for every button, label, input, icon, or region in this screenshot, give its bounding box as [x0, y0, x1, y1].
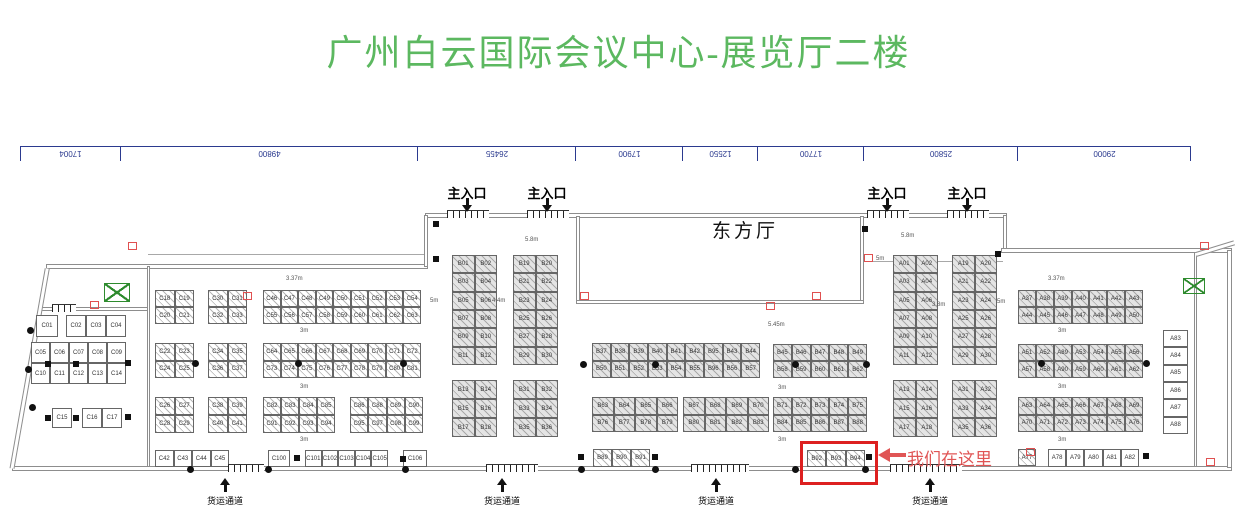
wall-line	[148, 254, 428, 255]
booth-C67: C67	[316, 343, 334, 361]
column-dot	[792, 361, 799, 368]
booth-A27: A27	[952, 328, 975, 346]
booth-B74: B74	[829, 397, 848, 415]
ruler-dimension-label: 17900	[576, 149, 683, 158]
booth-A02: A02	[916, 255, 939, 273]
booth-C16: C16	[82, 408, 102, 428]
booth-C86: C86	[350, 397, 368, 415]
booth-B02: B02	[475, 255, 498, 273]
booth-B24: B24	[536, 292, 559, 310]
booth-C102: C102	[322, 450, 339, 467]
column-dot	[25, 366, 32, 373]
arrow-head	[882, 205, 892, 212]
column-dot	[652, 466, 659, 473]
booth-A08: A08	[916, 310, 939, 328]
booth-C01: C01	[36, 315, 58, 337]
dimension-label: 3m	[300, 328, 308, 334]
ruler-dimension-label: 29000	[1018, 149, 1191, 158]
booth-B40: B40	[648, 343, 667, 361]
booth-C53: C53	[386, 290, 404, 307]
column-dot	[295, 360, 302, 367]
booth-C20: C20	[155, 307, 175, 324]
booth-B95: B95	[704, 343, 723, 361]
dimension-label: 3.37m	[1048, 276, 1065, 282]
booth-B27: B27	[513, 328, 536, 346]
booth-block-a19-a30: A19A20A21A22A23A24A25A26A27A28A29A30	[952, 255, 997, 365]
booth-B45: B45	[773, 344, 792, 361]
booth-B17: B17	[452, 418, 475, 437]
column-dot	[1143, 360, 1150, 367]
booth-block-b71-b88: B71B72B73B74B75B84B85B86B87B88	[773, 397, 867, 432]
booth-block-c101-c105: C101C102C103C104C105	[305, 450, 388, 467]
booth-B65: B65	[635, 397, 657, 415]
booth-C64: C64	[263, 343, 281, 361]
booth-A30: A30	[975, 347, 998, 365]
booth-C49: C49	[316, 290, 334, 307]
booth-B37: B37	[592, 343, 611, 361]
booth-A68: A68	[1107, 397, 1125, 415]
booth-C90: C90	[405, 397, 423, 415]
column-dot	[27, 327, 34, 334]
ruler-tick	[1190, 147, 1191, 161]
booth-A23: A23	[952, 292, 975, 310]
booth-A85: A85	[1163, 365, 1188, 382]
dimension-label: 3.37m	[286, 276, 303, 282]
booth-A53: A53	[1072, 344, 1090, 361]
booth-C97: C97	[368, 415, 386, 433]
dimension-label: 3m	[1058, 328, 1066, 334]
booth-B80: B80	[683, 415, 705, 433]
entrance-arrow-icon	[962, 198, 972, 212]
arrow-stem	[929, 485, 932, 492]
booth-B96: B96	[704, 361, 723, 379]
booth-A80: A80	[1084, 449, 1102, 467]
column-dot	[187, 466, 194, 473]
booth-B12: B12	[475, 347, 498, 365]
booth-block-a31-a36: A31A32A33A34A35A36	[952, 380, 997, 437]
booth-C23: C23	[175, 343, 195, 361]
booth-C09: C09	[107, 342, 126, 363]
pillar-square	[1143, 453, 1149, 459]
booth-B43: B43	[723, 343, 742, 361]
booth-block-b63-b79: B63B64B65B66B76B77B78B79	[592, 397, 678, 432]
booth-B31: B31	[513, 380, 536, 399]
booth-A33: A33	[952, 399, 975, 418]
booth-C42: C42	[155, 450, 174, 467]
booth-C05: C05	[31, 342, 50, 363]
booth-C83: C83	[281, 397, 299, 415]
dimension-label: 5.8m	[901, 233, 914, 239]
floor-plan-page: 广州白云国际会议中心-展览厅二楼 17004498002645517900125…	[0, 0, 1237, 517]
ruler-dimension-label: 17700	[758, 149, 864, 158]
wall-segment	[147, 266, 150, 467]
booth-A88: A88	[1163, 417, 1188, 434]
booth-C100: C100	[268, 450, 290, 467]
booth-A13: A13	[893, 380, 916, 399]
pillar-square	[578, 454, 584, 460]
booth-A39: A39	[1054, 290, 1072, 307]
booth-B34: B34	[536, 399, 559, 418]
ruler-dimension-label: 17004	[20, 149, 121, 158]
facility-red-mark	[128, 242, 137, 250]
booth-A51: A51	[1018, 344, 1036, 361]
booth-A26: A26	[975, 310, 998, 328]
booth-A56: A56	[1125, 344, 1143, 361]
booth-C22: C22	[155, 343, 175, 361]
booth-C79: C79	[368, 361, 386, 379]
booth-C84: C84	[299, 397, 317, 415]
dimension-label: 5m	[430, 298, 438, 304]
booth-C26: C26	[155, 397, 175, 415]
freight-arrow-icon	[711, 478, 721, 492]
booth-C50: C50	[333, 290, 351, 307]
booth-B13: B13	[452, 380, 475, 399]
booth-block-c64-c81: C64C65C66C67C68C69C70C71C72C73C74C75C76C…	[263, 343, 421, 378]
booth-A63: A63	[1018, 397, 1036, 415]
escalator-icon	[1183, 278, 1205, 294]
booth-C105: C105	[371, 450, 388, 467]
booth-A31: A31	[952, 380, 975, 399]
booth-A24: A24	[975, 292, 998, 310]
booth-B75: B75	[848, 397, 867, 415]
column-dot	[400, 360, 407, 367]
booth-C98: C98	[387, 415, 405, 433]
booth-C66: C66	[298, 343, 316, 361]
booth-B42: B42	[685, 343, 704, 361]
booth-block-b13-b18: B13B14B15B16B17B18	[452, 380, 497, 437]
booth-A17: A17	[893, 418, 916, 437]
booth-B86: B86	[811, 415, 830, 433]
booth-C72: C72	[403, 343, 421, 361]
booth-B81: B81	[705, 415, 727, 433]
dimension-label: 5m	[997, 299, 1005, 305]
booth-C34: C34	[208, 343, 228, 361]
wall-segment	[46, 264, 428, 269]
entrance-arrow-icon	[542, 198, 552, 212]
booth-C91: C91	[263, 415, 281, 433]
booth-B67: B67	[683, 397, 705, 415]
we-are-here-arrow-head-icon	[878, 448, 890, 462]
booth-A19: A19	[952, 255, 975, 273]
booth-block-c100: C100	[268, 450, 290, 467]
booth-B55: B55	[685, 361, 704, 379]
booth-B18: B18	[475, 418, 498, 437]
dimension-label: 3m	[778, 437, 786, 443]
booth-B57: B57	[741, 361, 760, 379]
booth-A52: A52	[1036, 344, 1054, 361]
booth-A05: A05	[893, 292, 916, 310]
booth-B66: B66	[657, 397, 679, 415]
booth-C68: C68	[333, 343, 351, 361]
booth-C13: C13	[88, 363, 107, 384]
door-group-icon	[691, 464, 749, 472]
booth-C39: C39	[228, 397, 248, 415]
booth-C99: C99	[405, 415, 423, 433]
booth-B64: B64	[614, 397, 636, 415]
booth-C08: C08	[88, 342, 107, 363]
arrow-head	[220, 478, 230, 485]
booth-B19: B19	[513, 255, 536, 273]
pillar-square	[433, 221, 439, 227]
booth-C46: C46	[263, 290, 281, 307]
booth-block-b67-b83: B67B68B69B70B80B81B82B83	[683, 397, 769, 432]
booth-B87: B87	[829, 415, 848, 433]
booth-B48: B48	[829, 344, 848, 361]
booth-A11: A11	[893, 347, 916, 365]
booth-A45: A45	[1036, 307, 1054, 324]
arrow-stem	[546, 198, 549, 205]
pillar-square	[433, 256, 439, 262]
facility-red-mark	[90, 301, 99, 309]
booth-B35: B35	[513, 418, 536, 437]
booth-C52: C52	[368, 290, 386, 307]
booth-A75: A75	[1107, 415, 1125, 433]
booth-A42: A42	[1107, 290, 1125, 307]
booth-A54: A54	[1089, 344, 1107, 361]
dimension-label: 3m	[1058, 437, 1066, 443]
booth-B16: B16	[475, 399, 498, 418]
booth-C41: C41	[228, 415, 248, 433]
booth-block-c38-c41: C38C39C40C41	[208, 397, 247, 433]
entrance-arrow-icon	[462, 198, 472, 212]
booth-C51: C51	[351, 290, 369, 307]
booth-block-c26-c29: C26C27C28C29	[155, 397, 194, 433]
booth-B56: B56	[723, 361, 742, 379]
booth-B50: B50	[592, 361, 611, 379]
booth-A44: A44	[1018, 307, 1036, 324]
column-dot	[792, 466, 799, 473]
arrow-head	[542, 205, 552, 212]
booth-C28: C28	[155, 415, 175, 433]
booth-B76: B76	[592, 415, 614, 433]
booth-C56: C56	[281, 307, 299, 324]
booth-A15: A15	[893, 399, 916, 418]
booth-B61: B61	[829, 361, 848, 378]
booth-A32: A32	[975, 380, 998, 399]
booth-B88: B88	[848, 415, 867, 433]
arrow-head	[462, 205, 472, 212]
booth-C24: C24	[155, 361, 175, 379]
booth-C88: C88	[368, 397, 386, 415]
booth-A72: A72	[1054, 415, 1072, 433]
booth-B63: B63	[592, 397, 614, 415]
booth-A21: A21	[952, 273, 975, 291]
booth-block-c86-c99: C86C88C89C90C95C97C98C99	[350, 397, 423, 433]
booth-A73: A73	[1072, 415, 1090, 433]
booth-B73: B73	[811, 397, 830, 415]
ruler-dimension-label: 49800	[121, 149, 418, 158]
booth-block-a37-a50: A37A38A39A40A41A42A43A44A45A46A47A48A49A…	[1018, 290, 1143, 324]
booth-A81: A81	[1103, 449, 1121, 467]
we-are-here-arrow	[888, 453, 906, 457]
booth-B58: B58	[773, 361, 792, 378]
booth-B33: B33	[513, 399, 536, 418]
door-group-icon	[52, 304, 76, 312]
booth-C61: C61	[368, 307, 386, 324]
booth-A48: A48	[1089, 307, 1107, 324]
booth-C04: C04	[106, 315, 126, 337]
booth-C55: C55	[263, 307, 281, 324]
facility-red-mark	[864, 254, 873, 262]
booth-B04: B04	[475, 273, 498, 291]
booth-A18: A18	[916, 418, 939, 437]
booth-C94: C94	[317, 415, 335, 433]
booth-A60: A60	[1089, 361, 1107, 378]
booth-C104: C104	[355, 450, 372, 467]
booth-A62: A62	[1125, 361, 1143, 378]
booth-A82: A82	[1121, 449, 1139, 467]
booth-A29: A29	[952, 347, 975, 365]
booth-B11: B11	[452, 347, 475, 365]
booth-A16: A16	[916, 399, 939, 418]
booth-B90: B90	[612, 449, 631, 467]
booth-B14: B14	[475, 380, 498, 399]
booth-C70: C70	[368, 343, 386, 361]
booth-C40: C40	[208, 415, 228, 433]
booth-A57: A57	[1018, 361, 1036, 378]
booth-A07: A07	[893, 310, 916, 328]
booth-B91: B91	[631, 449, 650, 467]
booth-A76: A76	[1125, 415, 1143, 433]
booth-block-c46-c63: C46C47C48C49C50C51C52C53C54C55C56C57C58C…	[263, 290, 421, 324]
column-dot	[402, 466, 409, 473]
booth-C21: C21	[175, 307, 195, 324]
booth-block-c02-c04: C02C03C04	[66, 315, 126, 337]
dimension-label: 3m	[778, 385, 786, 391]
booth-B78: B78	[635, 415, 657, 433]
booth-A84: A84	[1163, 347, 1188, 364]
booth-B26: B26	[536, 310, 559, 328]
booth-A37: A37	[1018, 290, 1036, 307]
booth-B38: B38	[611, 343, 630, 361]
freight-arrow-icon	[925, 478, 935, 492]
booth-C58: C58	[316, 307, 334, 324]
booth-C65: C65	[281, 343, 299, 361]
booth-A04: A04	[916, 273, 939, 291]
booth-C78: C78	[351, 361, 369, 379]
booth-B89: B89	[593, 449, 612, 467]
booth-C76: C76	[316, 361, 334, 379]
column-dot	[652, 361, 659, 368]
arrow-stem	[501, 485, 504, 492]
booth-C73: C73	[263, 361, 281, 379]
booth-C60: C60	[351, 307, 369, 324]
booth-C69: C69	[351, 343, 369, 361]
booth-B44: B44	[741, 343, 760, 361]
booth-block-a51-a62: A51A52A89A53A54A55A56A57A58A90A59A60A61A…	[1018, 344, 1143, 378]
ruler-dimension-label: 26455	[418, 149, 576, 158]
booth-A03: A03	[893, 273, 916, 291]
booth-B46: B46	[792, 344, 811, 361]
booth-C36: C36	[208, 361, 228, 379]
freight-passage-label: 货运通道	[912, 494, 948, 507]
freight-passage-label: 货运通道	[698, 494, 734, 507]
booth-A01: A01	[893, 255, 916, 273]
booth-B15: B15	[452, 399, 475, 418]
booth-C95: C95	[350, 415, 368, 433]
booth-C29: C29	[175, 415, 195, 433]
booth-A66: A66	[1072, 397, 1090, 415]
booth-C07: C07	[69, 342, 88, 363]
booth-block-c18-c21: C18C19C20C21	[155, 290, 194, 324]
booth-B41: B41	[667, 343, 686, 361]
booth-block-a83-a88: A83A84A85A86A87A88	[1163, 330, 1188, 434]
hall-name-label: 东方厅	[685, 216, 805, 243]
booth-B20: B20	[536, 255, 559, 273]
booth-A43: A43	[1125, 290, 1143, 307]
column-dot	[578, 466, 585, 473]
column-dot	[580, 361, 587, 368]
booth-A14: A14	[916, 380, 939, 399]
booth-A65: A65	[1054, 397, 1072, 415]
booth-A55: A55	[1107, 344, 1125, 361]
booth-B49: B49	[848, 344, 867, 361]
booth-B09: B09	[452, 328, 475, 346]
booth-A47: A47	[1072, 307, 1090, 324]
booth-C15: C15	[52, 408, 72, 428]
booth-B36: B36	[536, 418, 559, 437]
dimension-ruler: 1700449800264551790012550177002580029000	[20, 146, 1191, 163]
pillar-square	[400, 456, 406, 462]
booth-C62: C62	[386, 307, 404, 324]
booth-C32: C32	[208, 307, 228, 324]
booth-A34: A34	[975, 399, 998, 418]
booth-B47: B47	[811, 344, 830, 361]
booth-A41: A41	[1089, 290, 1107, 307]
dimension-label: 3m	[300, 384, 308, 390]
booth-C44: C44	[192, 450, 211, 467]
booth-C71: C71	[386, 343, 404, 361]
pillar-square	[45, 361, 51, 367]
column-dot	[192, 360, 199, 367]
arrow-stem	[715, 485, 718, 492]
booth-A36: A36	[975, 418, 998, 437]
booth-block-c01: C01	[36, 315, 58, 337]
booth-A40: A40	[1072, 290, 1090, 307]
booth-B84: B84	[773, 415, 792, 433]
booth-A71: A71	[1036, 415, 1054, 433]
booth-A50: A50	[1125, 307, 1143, 324]
facility-red-mark	[1206, 458, 1215, 466]
booth-B54: B54	[667, 361, 686, 379]
we-are-here-highlight-box	[800, 441, 878, 485]
booth-block-c22-c25: C22C23C24C25	[155, 343, 194, 378]
pillar-square	[125, 360, 131, 366]
booth-B79: B79	[657, 415, 679, 433]
booth-B52: B52	[629, 361, 648, 379]
booth-A20: A20	[975, 255, 998, 273]
freight-arrow-icon	[497, 478, 507, 492]
booth-block-c16-c17: C16C17	[82, 408, 122, 428]
pillar-square	[125, 414, 131, 420]
booth-A78: A78	[1048, 449, 1066, 467]
dimension-label: 4.4m	[492, 298, 505, 304]
door-group-icon	[486, 464, 538, 472]
booth-block-a78-a82: A78A79A80A81A82	[1048, 449, 1139, 467]
booth-C33: C33	[228, 307, 248, 324]
booth-C63: C63	[403, 307, 421, 324]
freight-passage-label: 货运通道	[207, 494, 243, 507]
booth-C48: C48	[298, 290, 316, 307]
booth-block-b37-b57: B37B38B39B40B41B42B95B43B44B50B51B52B53B…	[592, 343, 760, 378]
booth-C82: C82	[263, 397, 281, 415]
booth-C43: C43	[174, 450, 193, 467]
booth-C59: C59	[333, 307, 351, 324]
dimension-label: 3m	[300, 437, 308, 443]
booth-C27: C27	[175, 397, 195, 415]
wall-segment	[1227, 250, 1232, 468]
booth-A22: A22	[975, 273, 998, 291]
